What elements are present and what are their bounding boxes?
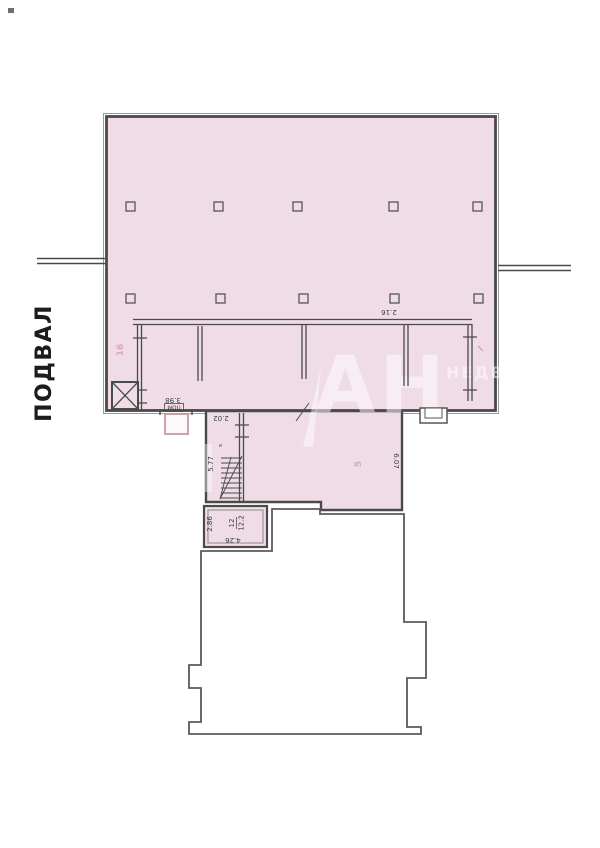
room-12-area: 12.2: [238, 515, 246, 531]
floorplan-page: АН НЕДВИ: [0, 0, 600, 848]
svg-text:16: 16: [116, 344, 126, 357]
floorplan-svg: АН НЕДВИ: [0, 0, 600, 848]
dim-5-77: 5.77: [207, 456, 215, 472]
pom-label-text: ПОМ: [167, 404, 180, 410]
scan-artifact: [8, 8, 14, 13]
shaft-symbol: [112, 382, 138, 409]
right-wall-stub: [498, 266, 571, 271]
stair-mark: в: [219, 443, 222, 449]
dim-2-16: 2.16: [381, 308, 397, 316]
left-wall-stub: [37, 259, 105, 264]
room-12-number: 12: [228, 519, 236, 528]
room-stamp-lower: 5: [354, 461, 364, 467]
dim-3-98: 3.98: [165, 396, 181, 404]
entry-door-right: [420, 408, 447, 423]
room-stamp-left: 16: [116, 344, 126, 357]
entry-door-left: [160, 409, 192, 434]
dim-2-86: 2.86: [206, 516, 214, 532]
page-title: ПОДВАЛ: [32, 304, 57, 422]
dim-6-07: 6.07: [392, 453, 400, 469]
dim-4-26: 4.26: [225, 536, 241, 544]
watermark-text-sub: НЕДВИ: [446, 363, 520, 382]
svg-text:5: 5: [354, 461, 364, 467]
dim-2-02: 2.02: [213, 414, 229, 422]
